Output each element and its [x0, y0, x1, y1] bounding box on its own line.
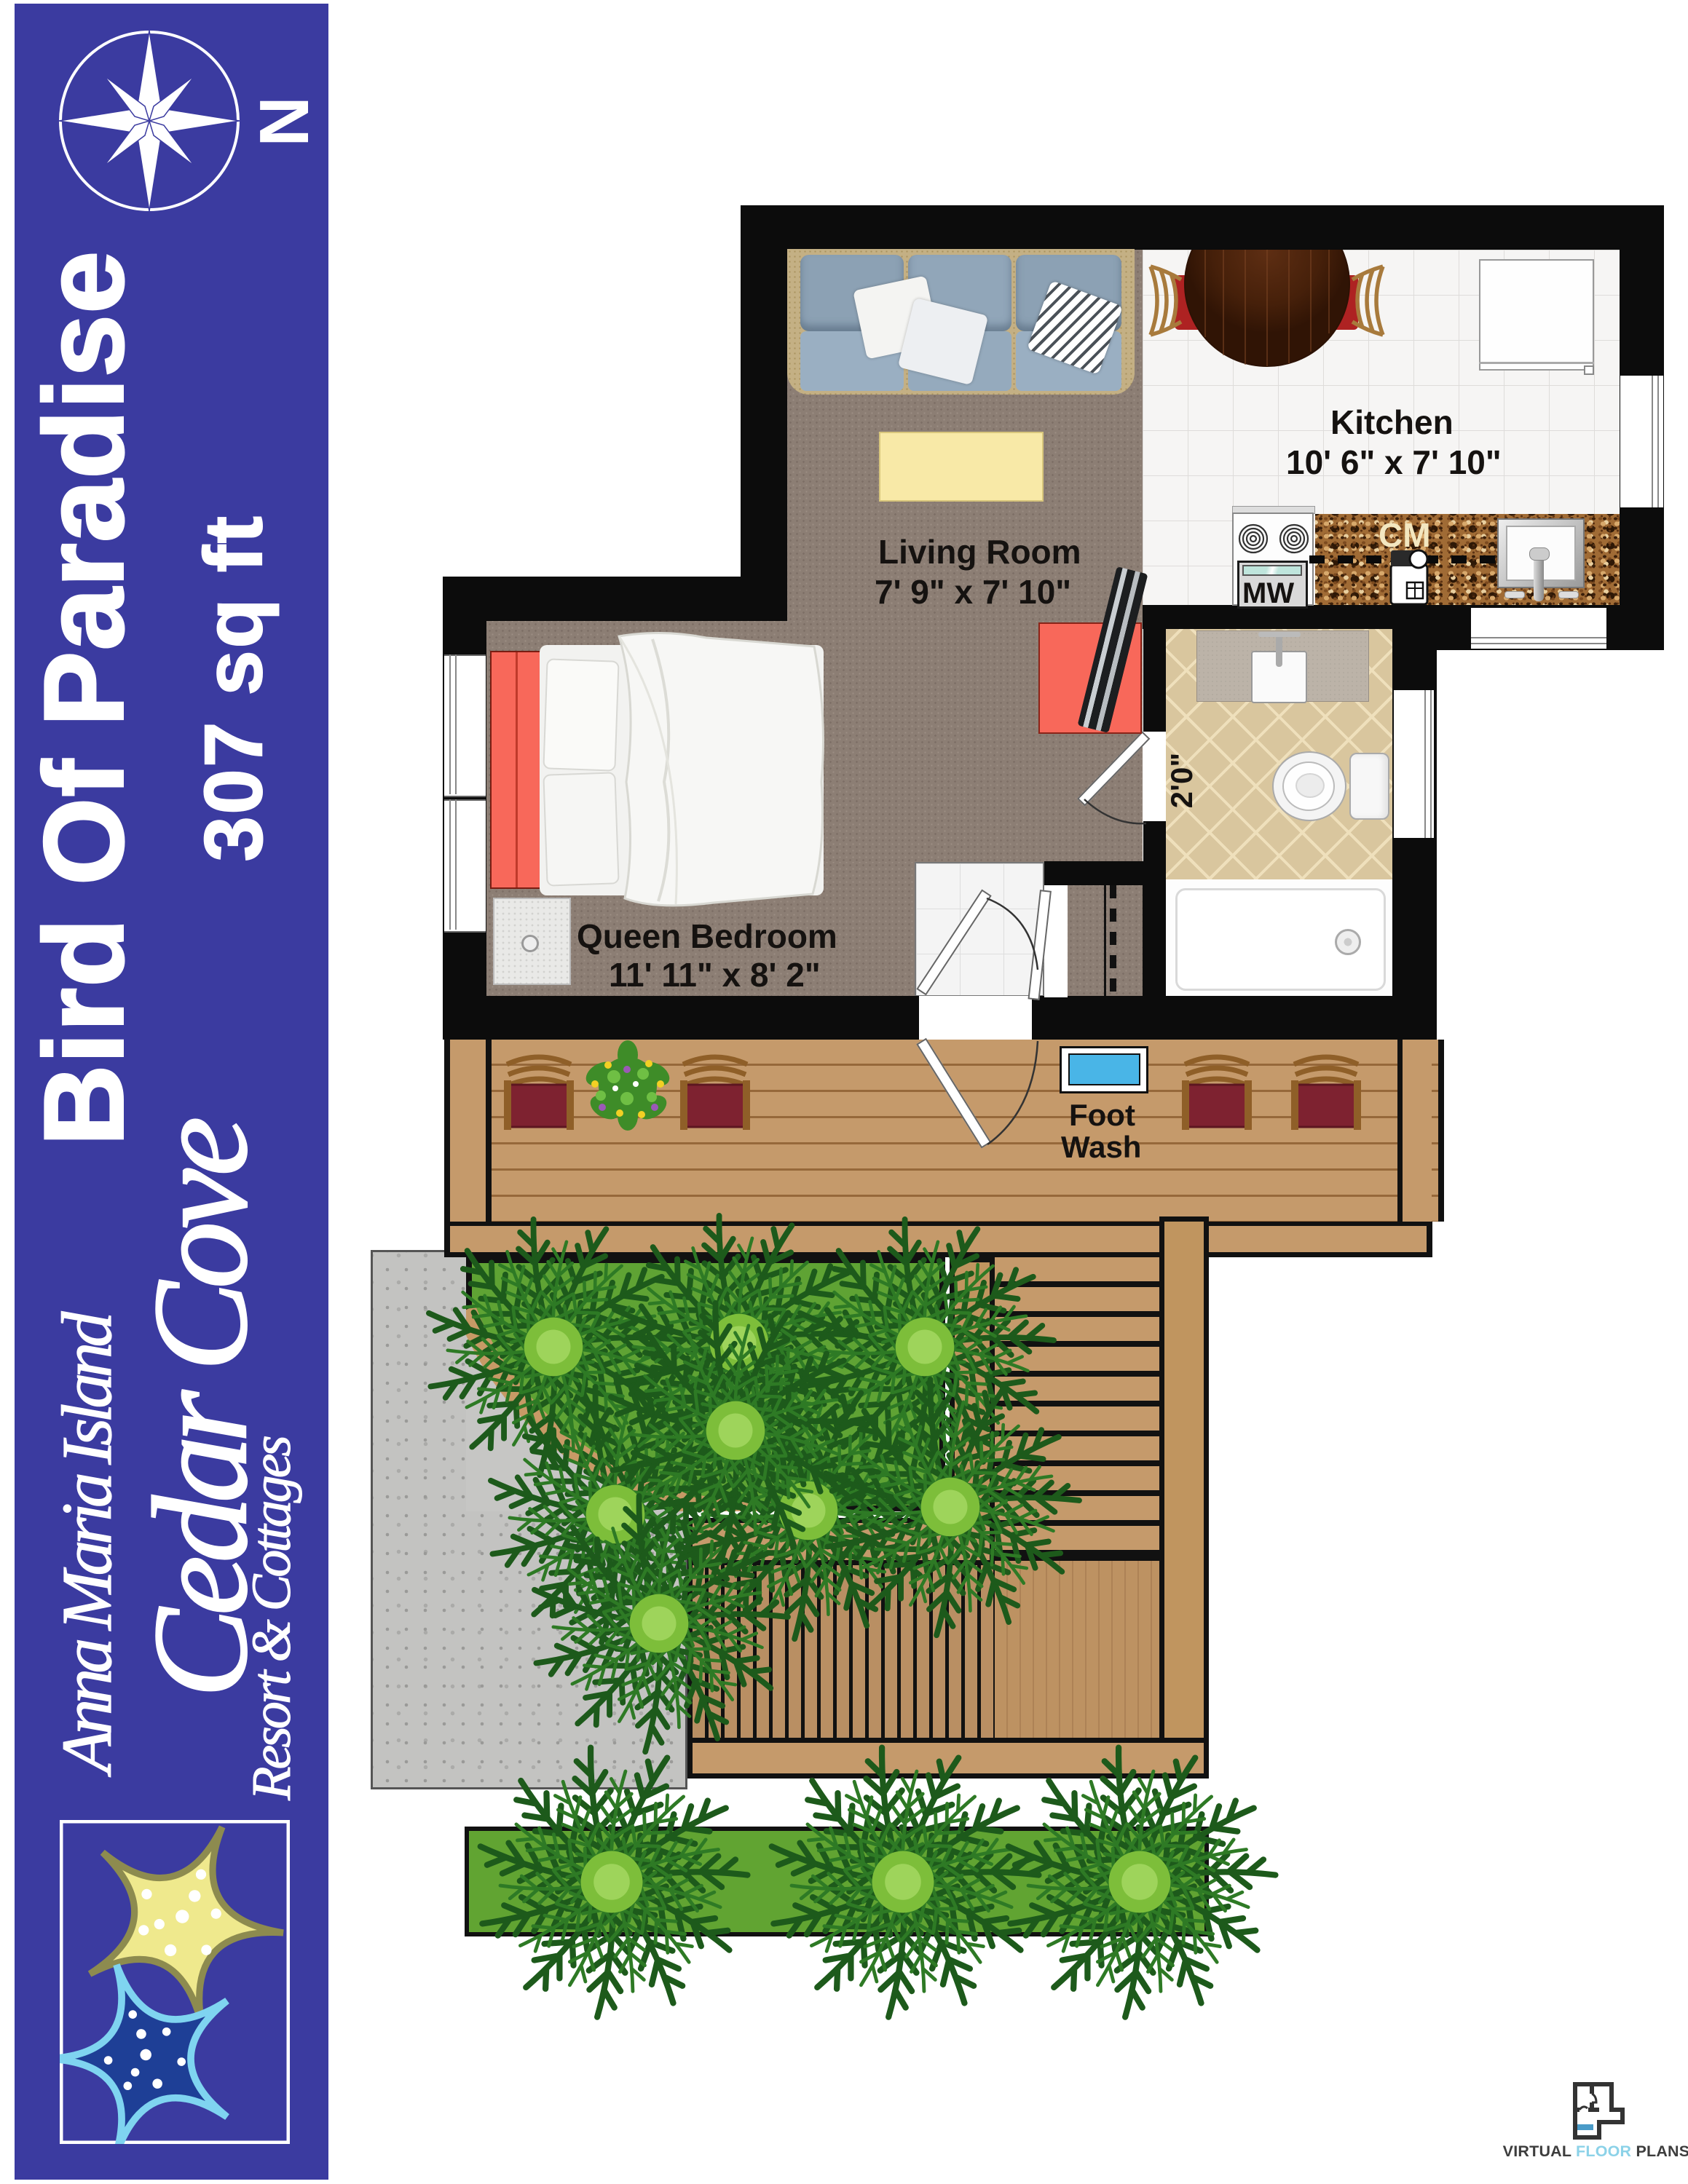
- svg-text:VIRTUAL FLOOR PLANS: VIRTUAL FLOOR PLANS: [1503, 2143, 1688, 2160]
